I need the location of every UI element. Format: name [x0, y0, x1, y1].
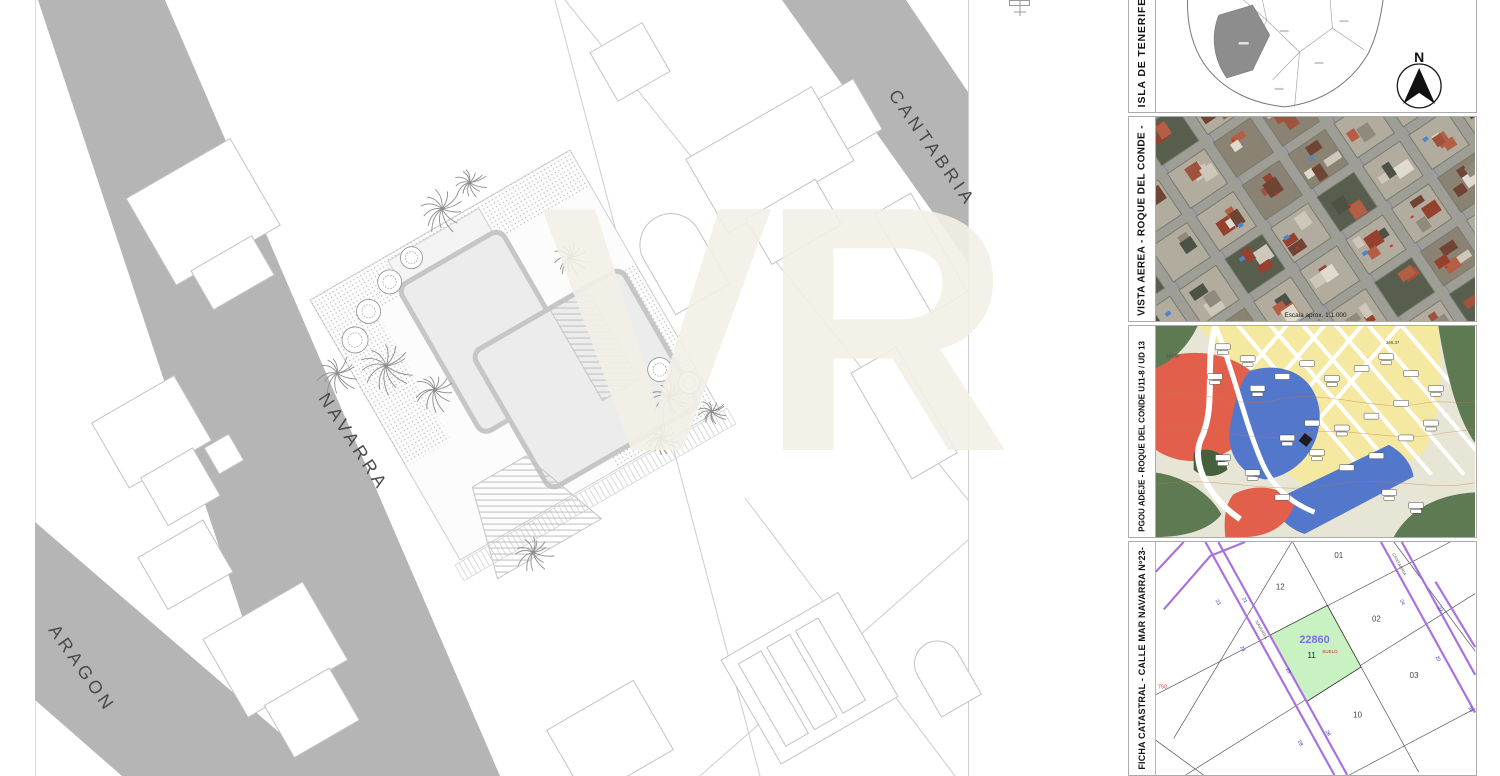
panel-label-strip: VISTA AEREA - ROQUE DEL CONDE -: [1129, 117, 1156, 321]
elevation-label: 247.55: [1166, 354, 1180, 359]
palm-tree-icon: [468, 183, 478, 198]
cadastral-parcel-number: 11: [1308, 651, 1317, 660]
compass-north-letter: N: [1414, 49, 1424, 65]
panel-title: PGOU ADEJE - ROQUE DEL CONDE U11-8 / UD …: [1138, 341, 1147, 532]
palm-tree-icon: [336, 373, 348, 391]
panel-label-strip: ISLA DE TENERIFE: [1129, 0, 1156, 112]
palm-tree-icon: [440, 195, 460, 209]
neighbor-building: [590, 23, 670, 101]
panel-pgou: PGOU ADEJE - ROQUE DEL CONDE U11-8 / UD …: [1128, 325, 1477, 538]
svg-text:01: 01: [1334, 551, 1343, 560]
aerial-scale-note: Escala aprox. 1:1.000: [1284, 312, 1347, 319]
zoning-map: 247.55 346.37: [1155, 326, 1476, 537]
panel-title: ISLA DE TENERIFE: [1136, 0, 1148, 107]
cadastral-reference: 22860: [1299, 634, 1329, 646]
plan-sheet: CANTABRIA NAVARRA ARAGON VR ISLA DE TENE…: [0, 0, 1500, 776]
svg-text:03: 03: [1410, 671, 1419, 680]
neighbor-building: [547, 680, 674, 776]
panel-label-strip: PGOU ADEJE - ROQUE DEL CONDE U11-8 / UD …: [1129, 326, 1156, 537]
cadastral-status: SUELO: [1322, 649, 1338, 654]
panel-ficha-catastral: FICHA CATASTRAL - CALLE MAR NAVARRA Nº23…: [1128, 541, 1477, 776]
svg-text:10: 10: [1353, 710, 1362, 719]
cadastral-map: 01 12 02 03 10 22860 SUELO 11 750 NAVARR…: [1155, 542, 1476, 775]
palm-tree-icon: [421, 197, 442, 217]
tenerife-map: N: [1155, 0, 1476, 112]
elevation-label: 346.37: [1386, 340, 1400, 345]
neighbor-building-arched: [906, 633, 981, 717]
watermark: VR: [540, 120, 960, 540]
panel-vista-aerea: VISTA AEREA - ROQUE DEL CONDE - Escala a…: [1128, 116, 1477, 322]
neighbor-building-rows: [721, 593, 898, 764]
selection-marker-icon: [1008, 0, 1032, 18]
cadastral-edge-ref: 750: [1158, 685, 1167, 691]
aerial-photo: Escala aprox. 1:1.000: [1155, 117, 1476, 321]
svg-text:02: 02: [1372, 614, 1381, 623]
panel-isla-de-tenerife: ISLA DE TENERIFE N: [1128, 0, 1477, 113]
panel-title: VISTA AEREA - ROQUE DEL CONDE -: [1137, 125, 1148, 316]
panel-label-strip: FICHA CATASTRAL - CALLE MAR NAVARRA Nº23…: [1129, 542, 1156, 775]
svg-text:12: 12: [1276, 583, 1285, 592]
north-arrow-icon: N: [1397, 49, 1441, 108]
panel-title: FICHA CATASTRAL - CALLE MAR NAVARRA Nº23…: [1137, 547, 1147, 770]
